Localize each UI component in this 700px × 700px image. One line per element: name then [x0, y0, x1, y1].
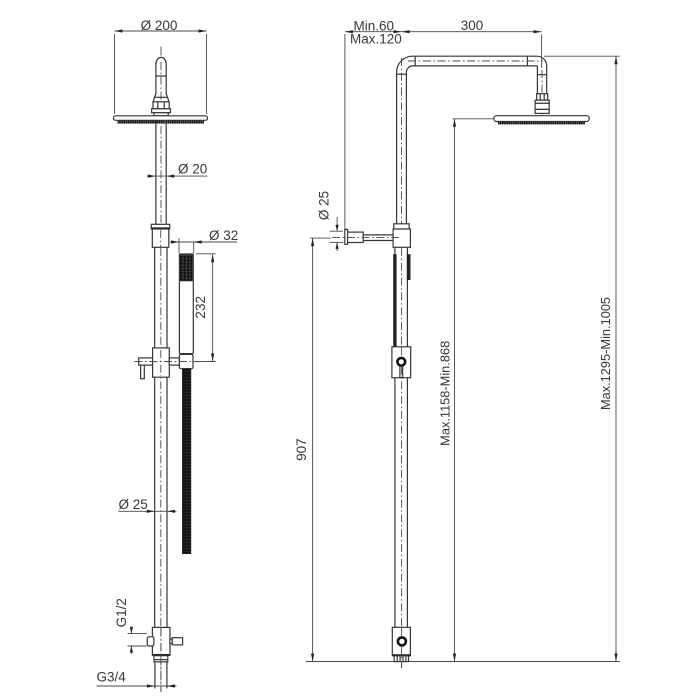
svg-text:Max.1295-Min.1005: Max.1295-Min.1005 [598, 297, 613, 410]
svg-text:907: 907 [294, 438, 309, 461]
svg-text:232: 232 [193, 296, 208, 319]
svg-text:300: 300 [461, 18, 484, 33]
svg-text:G1/2: G1/2 [114, 598, 129, 627]
svg-text:Ø 32: Ø 32 [209, 228, 238, 243]
svg-text:Max.120: Max.120 [350, 32, 402, 47]
svg-text:Max.1158-Min.868: Max.1158-Min.868 [437, 341, 452, 446]
svg-text:G3/4: G3/4 [97, 670, 127, 685]
svg-text:Ø 25: Ø 25 [317, 191, 332, 220]
svg-text:Ø 25: Ø 25 [119, 497, 148, 512]
svg-text:Ø 20: Ø 20 [178, 162, 207, 177]
